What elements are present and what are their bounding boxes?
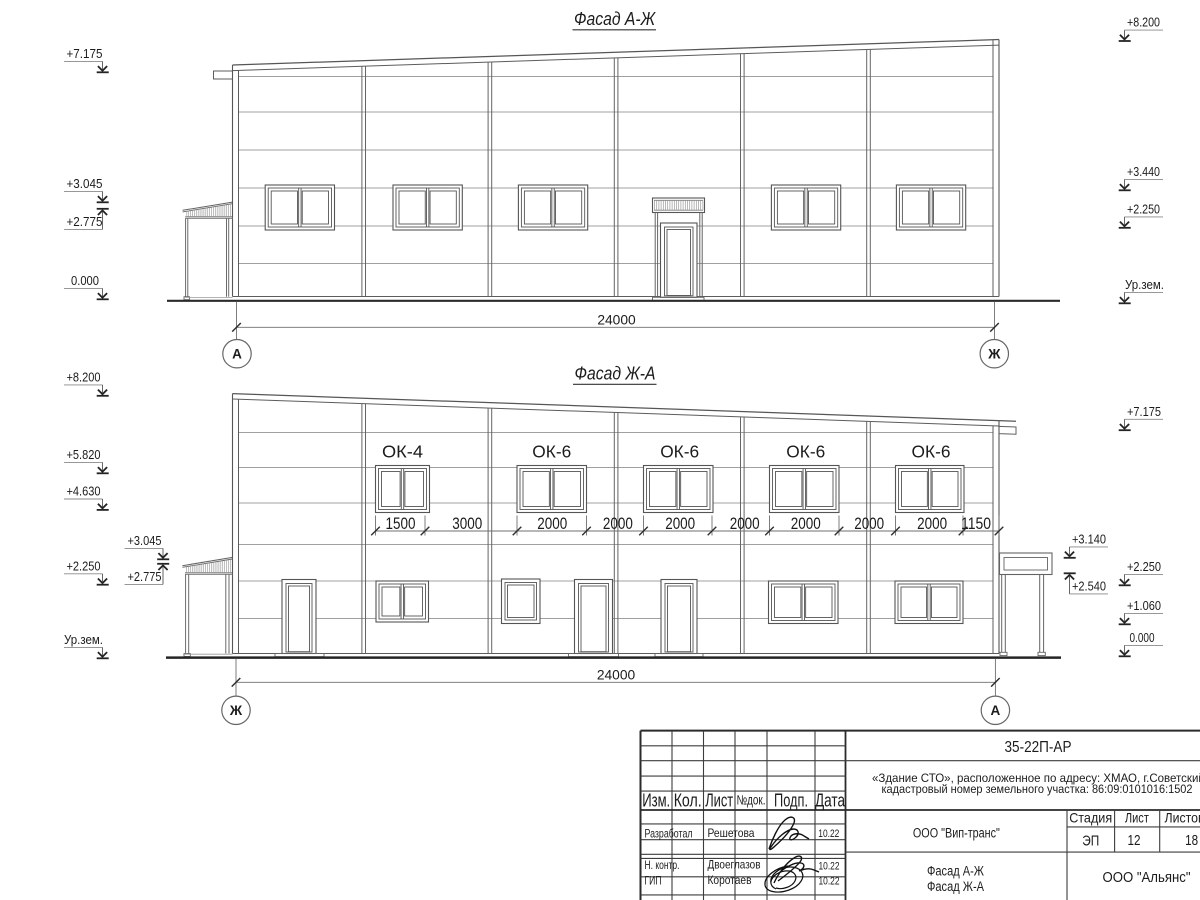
svg-text:Фасад А-Ж: Фасад А-Ж bbox=[927, 863, 984, 878]
svg-text:ГИП: ГИП bbox=[645, 874, 662, 888]
svg-text:2000: 2000 bbox=[730, 514, 760, 533]
svg-text:Дата: Дата bbox=[815, 790, 846, 811]
svg-text:24000: 24000 bbox=[597, 668, 636, 683]
svg-text:ООО "Вип-транс": ООО "Вип-транс" bbox=[913, 826, 1000, 841]
svg-text:18: 18 bbox=[1185, 833, 1198, 849]
svg-text:Ж: Ж bbox=[987, 347, 1001, 362]
svg-text:Коротаев: Коротаев bbox=[708, 873, 752, 887]
svg-text:Подп.: Подп. bbox=[774, 790, 808, 811]
svg-text:3000: 3000 bbox=[452, 514, 482, 533]
svg-text:Н. контр.: Н. контр. bbox=[645, 858, 680, 872]
svg-text:+3.140: +3.140 bbox=[1072, 532, 1106, 547]
svg-text:Разработал: Разработал bbox=[645, 826, 693, 840]
svg-text:№док.: №док. bbox=[737, 793, 766, 808]
svg-text:+3.045: +3.045 bbox=[128, 533, 162, 548]
svg-text:+2.540: +2.540 bbox=[1072, 579, 1106, 594]
svg-text:12: 12 bbox=[1128, 833, 1141, 849]
svg-text:ОК-6: ОК-6 bbox=[786, 441, 825, 461]
svg-text:Листов: Листов bbox=[1165, 810, 1200, 826]
svg-text:1150: 1150 bbox=[961, 514, 991, 533]
svg-text:ООО "Альянс": ООО "Альянс" bbox=[1103, 869, 1191, 886]
svg-text:2000: 2000 bbox=[603, 514, 633, 533]
svg-text:Стадия: Стадия bbox=[1069, 810, 1112, 826]
svg-text:0.000: 0.000 bbox=[1130, 630, 1155, 645]
svg-text:ЭП: ЭП bbox=[1082, 832, 1099, 849]
svg-text:+2.250: +2.250 bbox=[1127, 202, 1160, 217]
svg-text:+5.820: +5.820 bbox=[67, 447, 101, 462]
svg-text:ОК-6: ОК-6 bbox=[532, 441, 571, 461]
svg-text:+2.775: +2.775 bbox=[128, 569, 162, 584]
svg-text:0.000: 0.000 bbox=[71, 273, 99, 288]
svg-text:+8.200: +8.200 bbox=[67, 370, 101, 385]
svg-text:Решетова: Решетова bbox=[708, 826, 755, 840]
svg-text:+7.175: +7.175 bbox=[1127, 404, 1161, 419]
svg-text:Изм.: Изм. bbox=[642, 790, 670, 811]
svg-text:Фасад А-Ж: Фасад А-Ж bbox=[574, 9, 656, 29]
svg-text:2000: 2000 bbox=[854, 514, 884, 533]
svg-text:Лист: Лист bbox=[705, 790, 733, 811]
svg-text:+4.630: +4.630 bbox=[67, 484, 101, 499]
svg-text:Ур.зем.: Ур.зем. bbox=[64, 632, 103, 647]
svg-text:1500: 1500 bbox=[386, 514, 416, 533]
svg-text:Фасад Ж-А: Фасад Ж-А bbox=[575, 363, 656, 383]
svg-text:Двоеглазов: Двоеглазов bbox=[708, 857, 761, 871]
svg-text:24000: 24000 bbox=[597, 313, 636, 328]
svg-text:+7.175: +7.175 bbox=[67, 46, 103, 61]
svg-text:А: А bbox=[991, 703, 1001, 718]
svg-text:Ж: Ж bbox=[229, 703, 243, 718]
svg-text:кадастровый номер земельного у: кадастровый номер земельного участка: 86… bbox=[882, 782, 1193, 796]
svg-text:ОК-6: ОК-6 bbox=[660, 441, 699, 461]
svg-text:10.22: 10.22 bbox=[819, 860, 840, 872]
svg-text:10.22: 10.22 bbox=[819, 876, 840, 888]
svg-text:+2.250: +2.250 bbox=[67, 558, 101, 573]
svg-text:Ур.зем.: Ур.зем. bbox=[1125, 277, 1164, 292]
svg-text:+1.060: +1.060 bbox=[1127, 598, 1161, 613]
svg-text:+8.200: +8.200 bbox=[1127, 15, 1160, 30]
svg-text:+3.045: +3.045 bbox=[67, 176, 103, 191]
svg-text:Фасад Ж-А: Фасад Ж-А bbox=[927, 879, 984, 894]
svg-text:2000: 2000 bbox=[537, 514, 567, 533]
svg-text:35-22П-АР: 35-22П-АР bbox=[1005, 739, 1072, 756]
svg-text:2000: 2000 bbox=[665, 514, 695, 533]
svg-text:+2.250: +2.250 bbox=[1127, 559, 1161, 574]
svg-text:+2.775: +2.775 bbox=[67, 214, 103, 229]
svg-text:2000: 2000 bbox=[791, 514, 821, 533]
svg-text:Лист: Лист bbox=[1125, 810, 1149, 826]
svg-text:10.22: 10.22 bbox=[818, 828, 839, 840]
svg-text:+3.440: +3.440 bbox=[1127, 164, 1160, 179]
svg-text:ОК-4: ОК-4 bbox=[382, 441, 423, 461]
svg-text:2000: 2000 bbox=[917, 514, 947, 533]
svg-text:Кол.: Кол. bbox=[674, 790, 702, 811]
svg-text:А: А bbox=[232, 347, 242, 362]
svg-text:ОК-6: ОК-6 bbox=[912, 441, 951, 461]
